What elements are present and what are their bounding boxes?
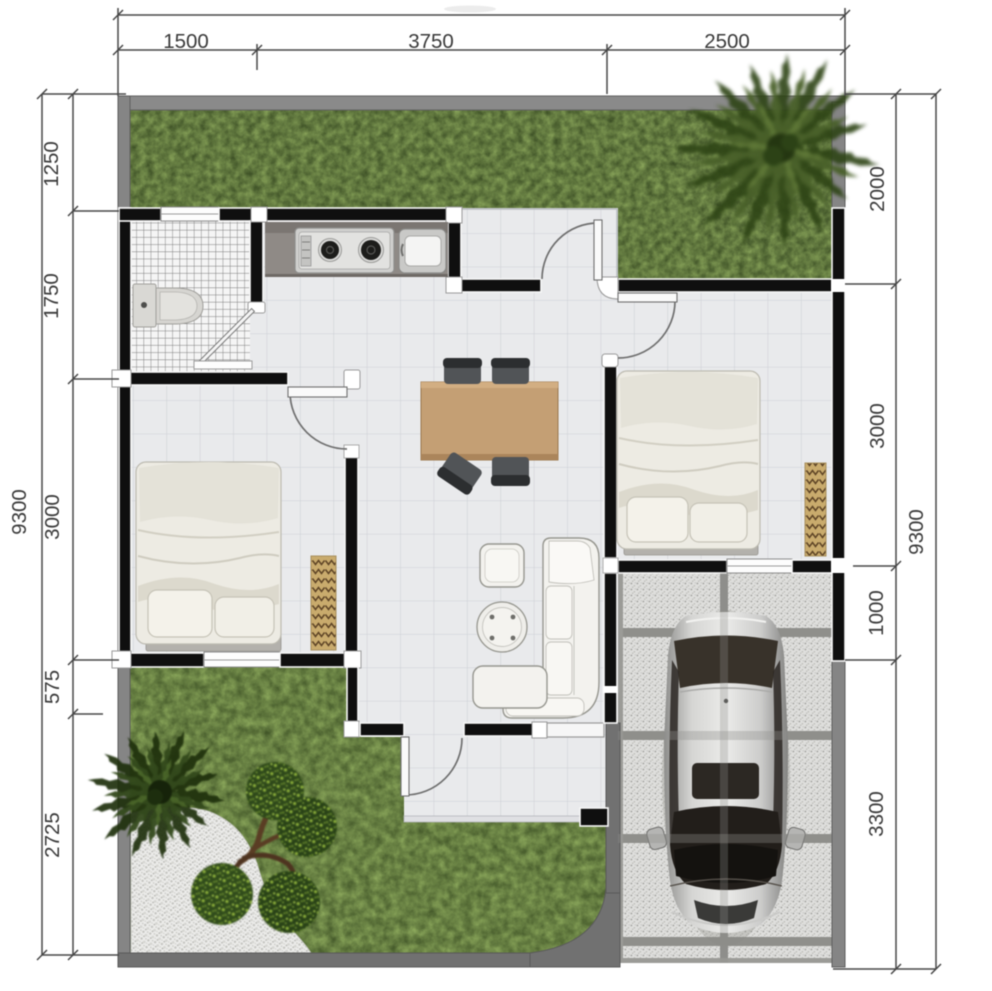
svg-text:3000: 3000 bbox=[41, 494, 64, 540]
svg-text:1500: 1500 bbox=[163, 30, 209, 53]
svg-text:575: 575 bbox=[41, 670, 64, 704]
svg-text:1000: 1000 bbox=[865, 590, 888, 636]
svg-text:9300: 9300 bbox=[905, 509, 928, 555]
svg-text:2000: 2000 bbox=[866, 166, 889, 212]
svg-text:3000: 3000 bbox=[866, 403, 889, 449]
svg-text:3300: 3300 bbox=[865, 791, 888, 837]
svg-text:1750: 1750 bbox=[40, 273, 63, 319]
svg-text:2725: 2725 bbox=[41, 812, 64, 858]
svg-text:9300: 9300 bbox=[8, 489, 31, 535]
svg-text:1250: 1250 bbox=[40, 141, 63, 187]
svg-text:3750: 3750 bbox=[408, 30, 454, 53]
svg-text:2500: 2500 bbox=[704, 30, 750, 53]
